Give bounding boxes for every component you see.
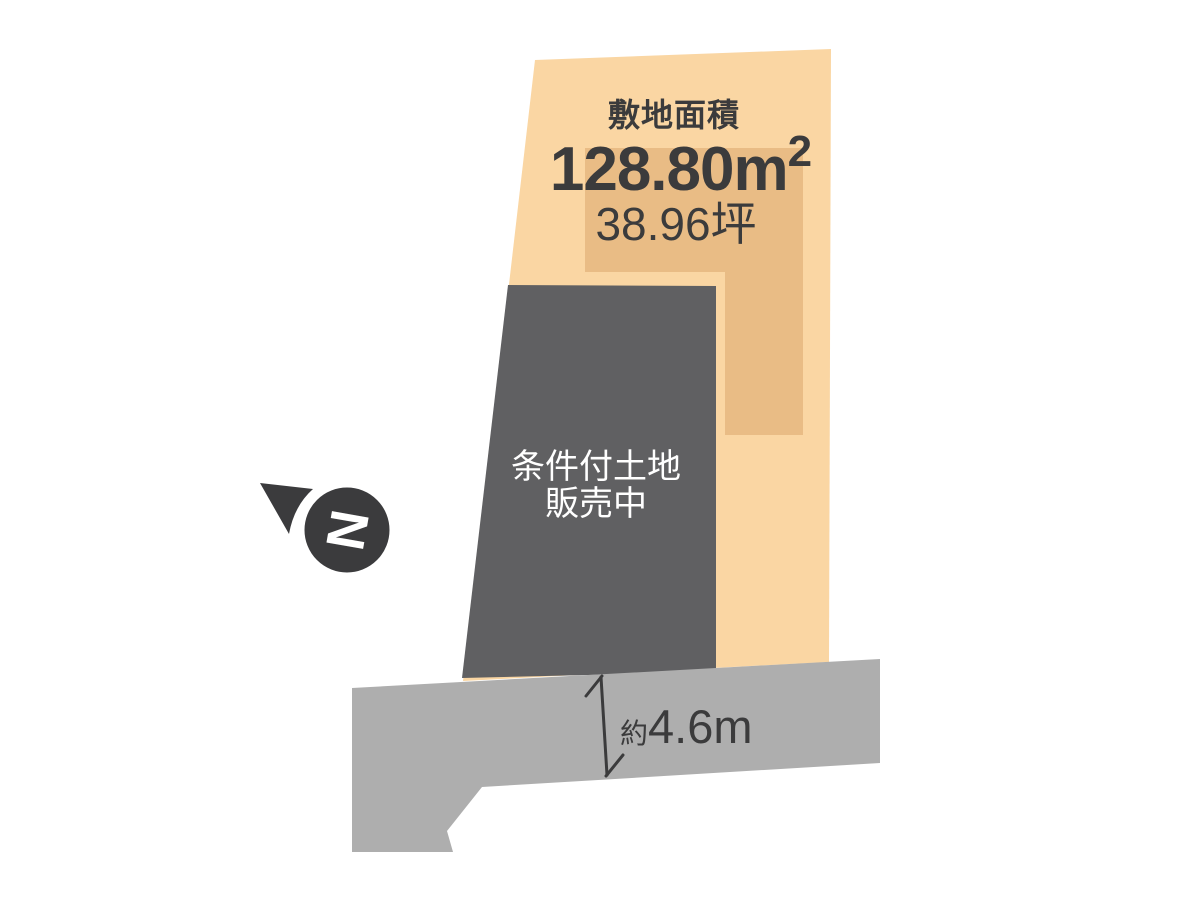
area-number: 128.80 — [550, 135, 734, 204]
plot-status-line1: 条件付土地 — [446, 449, 746, 486]
plot-status-line2: 販売中 — [446, 486, 746, 523]
site-area-label: 敷地面積 — [534, 90, 814, 136]
road-width-value: 4.6m — [648, 699, 753, 754]
road-width-label: 約4.6m — [620, 699, 753, 754]
site-area-value: 128.80m2 — [431, 139, 931, 207]
road-width-prefix: 約 — [620, 712, 648, 752]
area-unit-power: 2 — [788, 121, 812, 183]
area-unit: m — [734, 135, 788, 204]
north-arrow-icon: N — [260, 483, 392, 575]
road-shape — [352, 659, 880, 852]
plot-status-text: 条件付土地 販売中 — [446, 449, 746, 523]
site-area-tsubo: 38.96坪 — [476, 201, 876, 247]
land-plot-diagram: N 敷地面積 128.80m2 38.96坪 条件付土地 販売中 約4.6m — [0, 0, 1200, 900]
